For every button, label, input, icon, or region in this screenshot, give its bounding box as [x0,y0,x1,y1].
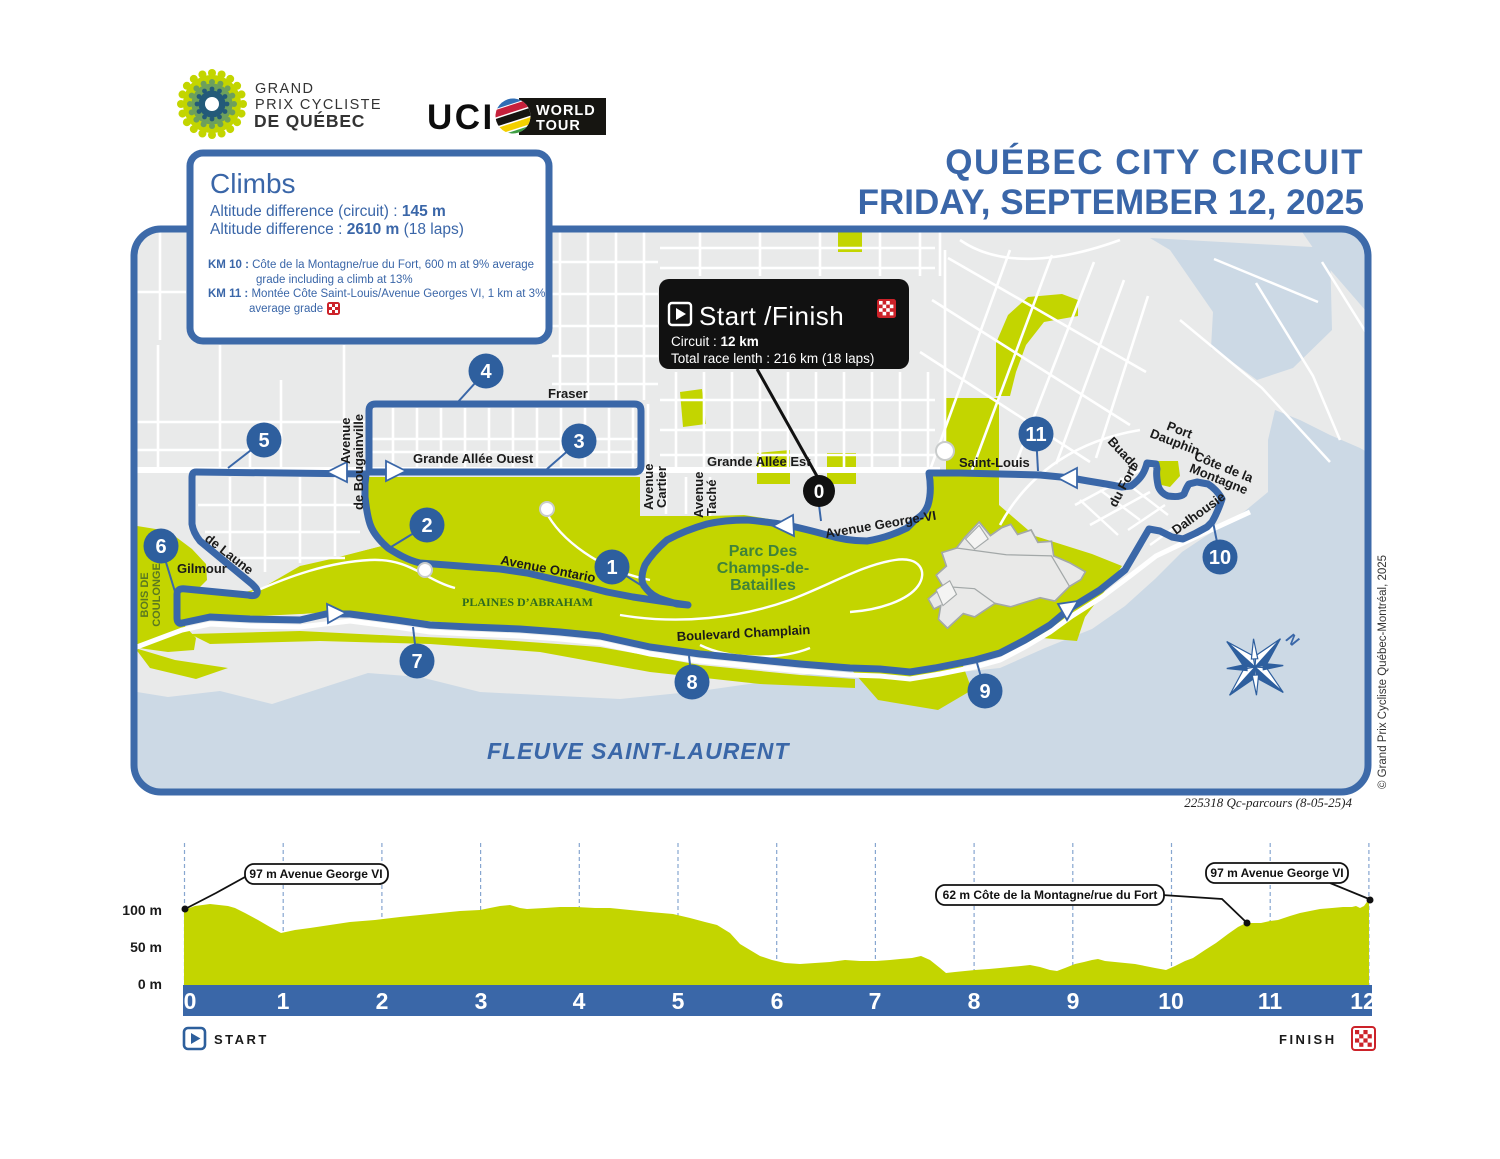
svg-text:Fraser: Fraser [548,386,588,401]
svg-text:Grande Allée Est: Grande Allée Est [707,454,811,469]
svg-text:KM 10 : Côte de la Montagne/ru: KM 10 : Côte de la Montagne/rue du Fort,… [208,259,534,271]
svg-text:4: 4 [573,988,586,1014]
svg-text:8: 8 [968,988,981,1014]
svg-text:START: START [214,1032,269,1047]
svg-text:QUÉBEC CITY CIRCUIT: QUÉBEC CITY CIRCUIT [945,142,1364,182]
svg-text:KM 11 : Montée Côte Saint-Loui: KM 11 : Montée Côte Saint-Louis/Avenue G… [208,288,545,300]
svg-text:11: 11 [1025,424,1046,446]
svg-text:© Grand Prix Cycliste Québec-M: © Grand Prix Cycliste Québec-Montréal, 2… [1377,555,1389,789]
svg-text:1: 1 [277,988,290,1014]
svg-text:11: 11 [1258,988,1283,1014]
svg-text:8: 8 [686,672,697,694]
svg-text:0: 0 [184,988,197,1014]
svg-text:12: 12 [1350,988,1376,1014]
svg-text:2: 2 [376,988,389,1014]
svg-text:average grade: average grade [249,303,323,315]
svg-text:9: 9 [1067,988,1080,1014]
svg-text:10: 10 [1209,547,1231,569]
svg-text:5: 5 [258,430,269,452]
svg-text:WORLD: WORLD [536,103,596,119]
svg-text:4: 4 [480,361,492,383]
svg-text:Climbs: Climbs [210,168,296,199]
svg-text:BOIS DE: BOIS DE [139,572,151,617]
svg-text:7: 7 [869,988,882,1014]
svg-text:FRIDAY, SEPTEMBER 12, 2025: FRIDAY, SEPTEMBER 12, 2025 [858,183,1364,222]
svg-text:FINISH: FINISH [1279,1032,1337,1047]
svg-text:Altitude difference : 2610 m (: Altitude difference : 2610 m (18 laps) [210,221,464,238]
svg-text:9: 9 [979,681,990,703]
svg-text:TOUR: TOUR [536,118,581,134]
svg-text:225318 Qc-parcours (8-05-25)4: 225318 Qc-parcours (8-05-25)4 [1184,795,1352,810]
svg-text:PLAINES D’ABRAHAM: PLAINES D’ABRAHAM [462,595,593,609]
svg-text:DE QUÉBEC: DE QUÉBEC [254,110,365,131]
svg-text:Gilmour: Gilmour [177,561,227,576]
svg-text:Altitude difference (circuit): Altitude difference (circuit) : 145 m [210,203,446,220]
svg-text:2: 2 [421,515,432,537]
svg-text:6: 6 [155,536,166,558]
svg-text:6: 6 [771,988,784,1014]
svg-text:Parc Des: Parc Des [729,543,798,560]
svg-text:3: 3 [573,431,584,453]
svg-text:62 m Côte de la Montagne/rue d: 62 m Côte de la Montagne/rue du Fort [943,888,1158,902]
svg-text:0: 0 [814,482,825,503]
svg-text:Grande Allée Ouest: Grande Allée Ouest [413,451,534,466]
svg-text:1: 1 [606,557,617,579]
svg-text:50 m: 50 m [130,939,162,955]
svg-text:Circuit : 12 km: Circuit : 12 km [671,334,759,349]
svg-text:Total race lenth : 216 km (18: Total race lenth : 216 km (18 laps) [671,351,874,366]
svg-text:7: 7 [411,651,422,673]
svg-text:5: 5 [672,988,685,1014]
svg-text:COULONGE: COULONGE [151,563,163,627]
svg-text:Start /Finish: Start /Finish [699,301,844,331]
svg-text:grade including a climb at 13%: grade including a climb at 13% [256,274,413,286]
svg-text:3: 3 [475,988,488,1014]
svg-text:100 m: 100 m [122,902,162,918]
svg-text:UCI: UCI [427,98,495,137]
svg-text:FLEUVE SAINT-LAURENT: FLEUVE SAINT-LAURENT [487,738,790,764]
svg-text:GRAND: GRAND [255,81,314,97]
svg-text:de Bougainville: de Bougainville [351,414,366,510]
svg-text:97 m Avenue George VI: 97 m Avenue George VI [1210,866,1343,880]
svg-text:97 m Avenue George VI: 97 m Avenue George VI [249,867,382,881]
svg-text:Batailles: Batailles [730,577,796,594]
svg-text:Taché: Taché [704,479,719,516]
svg-text:10: 10 [1158,988,1184,1014]
svg-text:Champs-de-: Champs-de- [717,560,809,577]
svg-text:0 m: 0 m [138,976,162,992]
svg-text:Saint-Louis: Saint-Louis [959,455,1030,470]
svg-text:Cartier: Cartier [654,466,669,508]
